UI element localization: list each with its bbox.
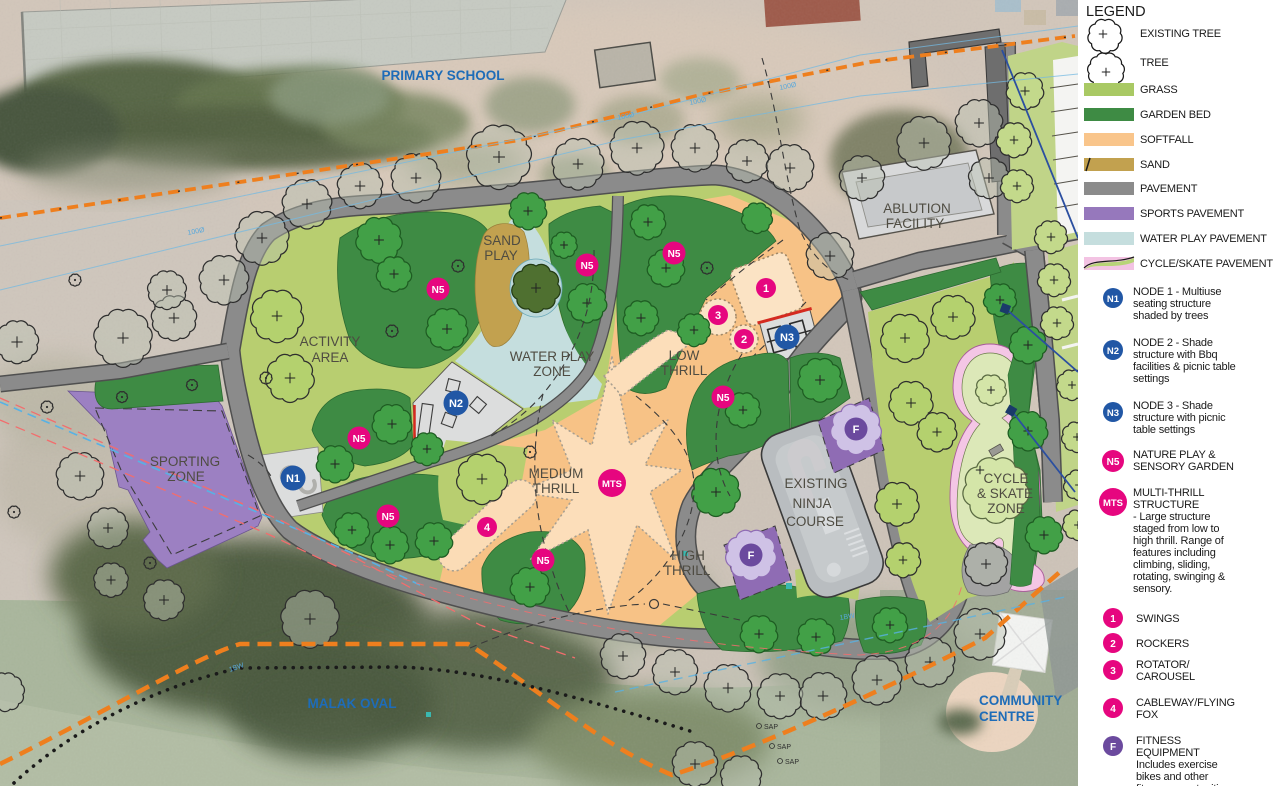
svg-text:seating structure: seating structure (1133, 298, 1211, 310)
svg-text:N5: N5 (353, 434, 366, 445)
svg-text:3: 3 (715, 310, 721, 322)
svg-text:- Large structure: - Large structure (1133, 511, 1210, 523)
svg-text:MTS: MTS (1103, 498, 1123, 509)
svg-text:4: 4 (1110, 704, 1116, 715)
svg-text:STRUCTURE: STRUCTURE (1133, 499, 1199, 511)
svg-text:F: F (853, 424, 860, 436)
svg-text:NODE 1 - Multiuse: NODE 1 - Multiuse (1133, 286, 1221, 298)
svg-text:WATER PLAY PAVEMENT: WATER PLAY PAVEMENT (1140, 233, 1267, 245)
svg-text:FOX: FOX (1136, 709, 1159, 721)
svg-text:ABLUTION: ABLUTION (883, 201, 951, 216)
svg-text:THRILL: THRILL (661, 363, 708, 378)
svg-text:MALAK OVAL: MALAK OVAL (308, 696, 397, 711)
svg-text:COURSE: COURSE (786, 514, 844, 529)
svg-text:AREA: AREA (312, 350, 349, 365)
svg-text:sensory.: sensory. (1133, 583, 1172, 595)
svg-text:& SKATE: & SKATE (977, 486, 1033, 501)
svg-text:Includes exercise: Includes exercise (1136, 759, 1218, 771)
svg-text:1: 1 (1110, 614, 1116, 625)
svg-text:CYCLE: CYCLE (983, 471, 1028, 486)
svg-text:THRILL: THRILL (533, 481, 580, 496)
svg-text:FITNESS: FITNESS (1136, 735, 1181, 747)
svg-text:SOFTFALL: SOFTFALL (1140, 134, 1193, 146)
svg-text:staged from low to: staged from low to (1133, 523, 1219, 535)
svg-text:GRASS: GRASS (1140, 84, 1178, 96)
svg-text:bikes and other: bikes and other (1136, 771, 1209, 783)
svg-text:ROCKERS: ROCKERS (1136, 638, 1189, 650)
svg-text:SAND: SAND (483, 233, 521, 248)
svg-text:facilities & picnic table: facilities & picnic table (1133, 361, 1236, 373)
svg-text:structure with Bbq: structure with Bbq (1133, 349, 1218, 361)
svg-text:NODE 3 - Shade: NODE 3 - Shade (1133, 400, 1213, 412)
svg-text:LOW: LOW (669, 348, 700, 363)
svg-text:N5: N5 (581, 261, 594, 272)
svg-text:N3: N3 (780, 332, 794, 344)
svg-text:NATURE PLAY &: NATURE PLAY & (1133, 449, 1216, 461)
svg-text:SPORTS PAVEMENT: SPORTS PAVEMENT (1140, 208, 1244, 220)
svg-text:ROTATOR/: ROTATOR/ (1136, 659, 1191, 671)
svg-text:ZONE: ZONE (533, 364, 571, 379)
svg-text:rotating, swinging &: rotating, swinging & (1133, 571, 1226, 583)
svg-text:SPORTING: SPORTING (150, 454, 220, 469)
svg-text:SAND: SAND (1140, 159, 1170, 171)
svg-text:MULTI-THRILL: MULTI-THRILL (1133, 487, 1204, 499)
svg-text:SAP: SAP (785, 759, 799, 766)
svg-text:SAP: SAP (764, 724, 778, 731)
svg-text:SWINGS: SWINGS (1136, 613, 1179, 625)
svg-text:ACTIVITY: ACTIVITY (300, 334, 361, 349)
svg-text:THRILL: THRILL (664, 563, 711, 578)
svg-text:N1: N1 (1107, 294, 1120, 305)
svg-text:3: 3 (1110, 666, 1116, 677)
svg-text:settings: settings (1133, 373, 1170, 385)
svg-text:high thrill. Range of: high thrill. Range of (1133, 535, 1225, 547)
svg-text:ZONE: ZONE (987, 501, 1025, 516)
svg-text:N5: N5 (717, 393, 730, 404)
svg-text:N5: N5 (537, 556, 550, 567)
svg-text:COMMUNITY: COMMUNITY (979, 693, 1062, 708)
svg-text:FACILITY: FACILITY (886, 216, 945, 231)
svg-text:2: 2 (741, 334, 747, 346)
svg-text:MEDIUM: MEDIUM (529, 466, 584, 481)
svg-text:PRIMARY SCHOOL: PRIMARY SCHOOL (381, 68, 504, 83)
svg-text:N3: N3 (1107, 408, 1119, 419)
svg-text:2: 2 (1110, 639, 1116, 650)
svg-text:GARDEN BED: GARDEN BED (1140, 109, 1211, 121)
svg-text:CAROUSEL: CAROUSEL (1136, 671, 1195, 683)
svg-text:N5: N5 (432, 285, 445, 296)
svg-text:SENSORY GARDEN: SENSORY GARDEN (1133, 461, 1234, 473)
svg-text:table settings: table settings (1133, 424, 1196, 436)
svg-text:NINJA: NINJA (792, 496, 831, 511)
svg-text:EXISTING: EXISTING (784, 476, 847, 491)
svg-text:N5: N5 (1107, 457, 1120, 468)
svg-text:HIGH: HIGH (671, 548, 705, 563)
svg-text:1: 1 (763, 283, 769, 295)
svg-text:N5: N5 (382, 512, 395, 523)
svg-text:F: F (1110, 742, 1116, 753)
svg-text:NODE 2 - Shade: NODE 2 - Shade (1133, 337, 1213, 349)
svg-text:climbing, sliding,: climbing, sliding, (1133, 559, 1210, 571)
svg-text:TREE: TREE (1140, 57, 1169, 69)
svg-text:shaded by trees: shaded by trees (1133, 310, 1209, 322)
svg-text:CYCLE/SKATE PAVEMENT: CYCLE/SKATE PAVEMENT (1140, 258, 1273, 270)
svg-text:CABLEWAY/FLYING: CABLEWAY/FLYING (1136, 697, 1235, 709)
svg-text:N1: N1 (286, 473, 300, 485)
svg-text:structure with picnic: structure with picnic (1133, 412, 1226, 424)
svg-text:EQUIPMENT: EQUIPMENT (1136, 747, 1200, 759)
svg-text:features including: features including (1133, 547, 1216, 559)
svg-text:MTS: MTS (602, 479, 622, 490)
svg-text:CENTRE: CENTRE (979, 709, 1035, 724)
svg-text:EXISTING TREE: EXISTING TREE (1140, 28, 1221, 40)
svg-text:N5: N5 (668, 249, 681, 260)
svg-text:N2: N2 (449, 398, 463, 410)
svg-text:F: F (748, 550, 755, 562)
svg-text:PLAY: PLAY (484, 248, 518, 263)
svg-text:LEGEND: LEGEND (1086, 4, 1146, 20)
svg-text:SAP: SAP (777, 744, 791, 751)
svg-text:PAVEMENT: PAVEMENT (1140, 183, 1198, 195)
svg-text:N2: N2 (1107, 346, 1119, 357)
svg-text:WATER PLAY: WATER PLAY (510, 349, 595, 364)
svg-text:4: 4 (484, 522, 491, 534)
svg-text:ZONE: ZONE (167, 469, 205, 484)
